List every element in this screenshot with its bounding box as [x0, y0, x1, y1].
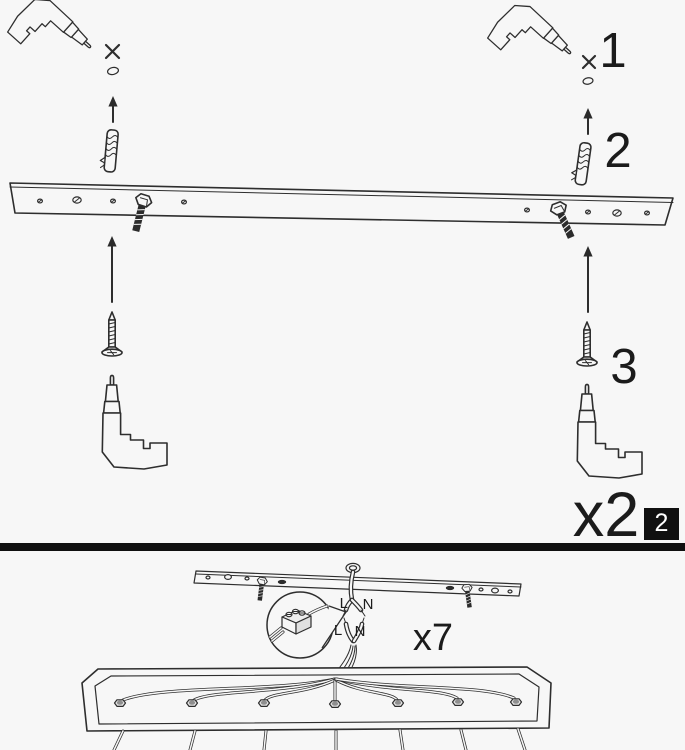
drill-mark-right-icon [583, 56, 595, 68]
mounting-rail [10, 183, 673, 241]
drilled-hole-left-icon [107, 66, 119, 75]
instruction-sheet: 1 2 3 x2 2 [0, 0, 685, 750]
step-3-label: 3 [610, 340, 637, 394]
lower-neutral-label: N [355, 623, 366, 640]
quantity-x7-label: x7 [413, 617, 453, 659]
arrow-up-right-bottom-icon [583, 246, 592, 312]
bottom-panel: L N L N x7 [82, 563, 551, 750]
arrow-up-right-top-icon [583, 108, 592, 134]
diagram-canvas: 1 2 3 x2 2 [0, 0, 685, 750]
wall-plug-left-icon [99, 129, 118, 172]
drilled-hole-right-icon [583, 77, 594, 85]
drill-mark-left-icon [106, 45, 119, 58]
drill-bottom-left-icon [102, 375, 167, 469]
upper-neutral-label: N [363, 596, 374, 613]
quantity-x2-label: x2 [573, 480, 640, 550]
drill-bottom-right-icon [577, 384, 642, 478]
canopy-tray [82, 667, 551, 750]
pendant-cords [114, 729, 525, 750]
ceiling-bracket [194, 563, 521, 608]
page-number-label: 2 [655, 509, 669, 537]
drill-top-right-icon [485, 0, 575, 86]
lower-live-label: L [334, 622, 342, 639]
arrow-up-left-bottom-icon [107, 236, 116, 302]
section-divider [0, 543, 685, 551]
screw-right-icon [577, 322, 597, 366]
drill-top-left-icon [5, 0, 95, 80]
step-1-label: 1 [599, 24, 626, 78]
wall-plug-right-icon [570, 142, 591, 186]
arrow-up-left-top-icon [108, 96, 117, 122]
upper-live-label: L [340, 595, 348, 612]
screw-left-icon [102, 312, 122, 356]
top-panel: 1 2 3 x2 2 [5, 0, 679, 550]
step-2-label: 2 [604, 124, 631, 178]
